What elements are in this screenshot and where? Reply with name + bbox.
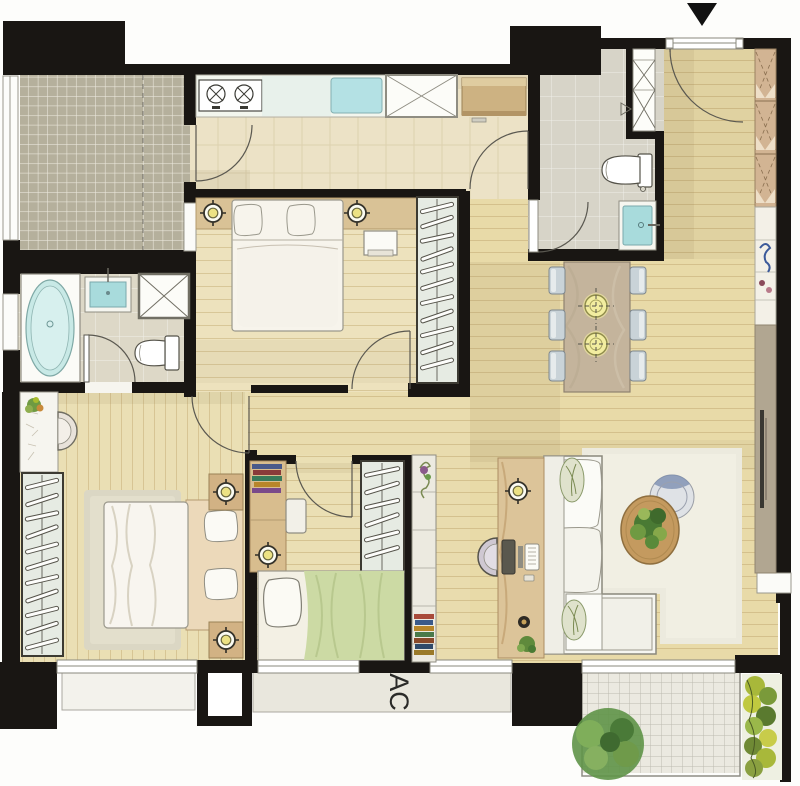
svg-text:AC: AC — [384, 673, 414, 711]
